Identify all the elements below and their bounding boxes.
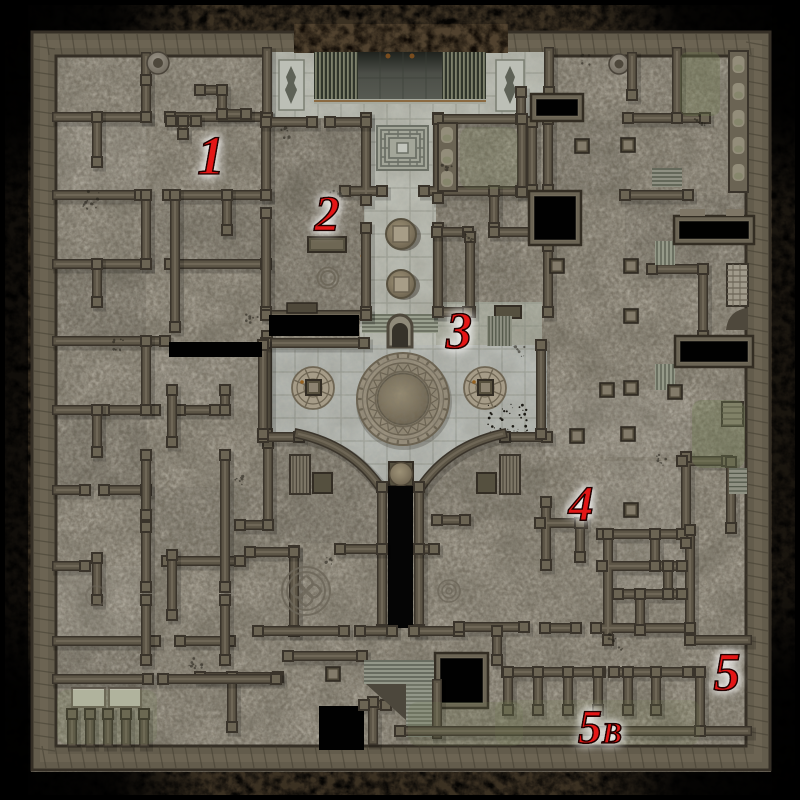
svg-text:1: 1 [197, 125, 225, 186]
svg-text:3: 3 [445, 303, 472, 360]
svg-text:2: 2 [314, 185, 340, 241]
svg-text:4: 4 [568, 475, 594, 531]
svg-text:5: 5 [714, 642, 741, 702]
